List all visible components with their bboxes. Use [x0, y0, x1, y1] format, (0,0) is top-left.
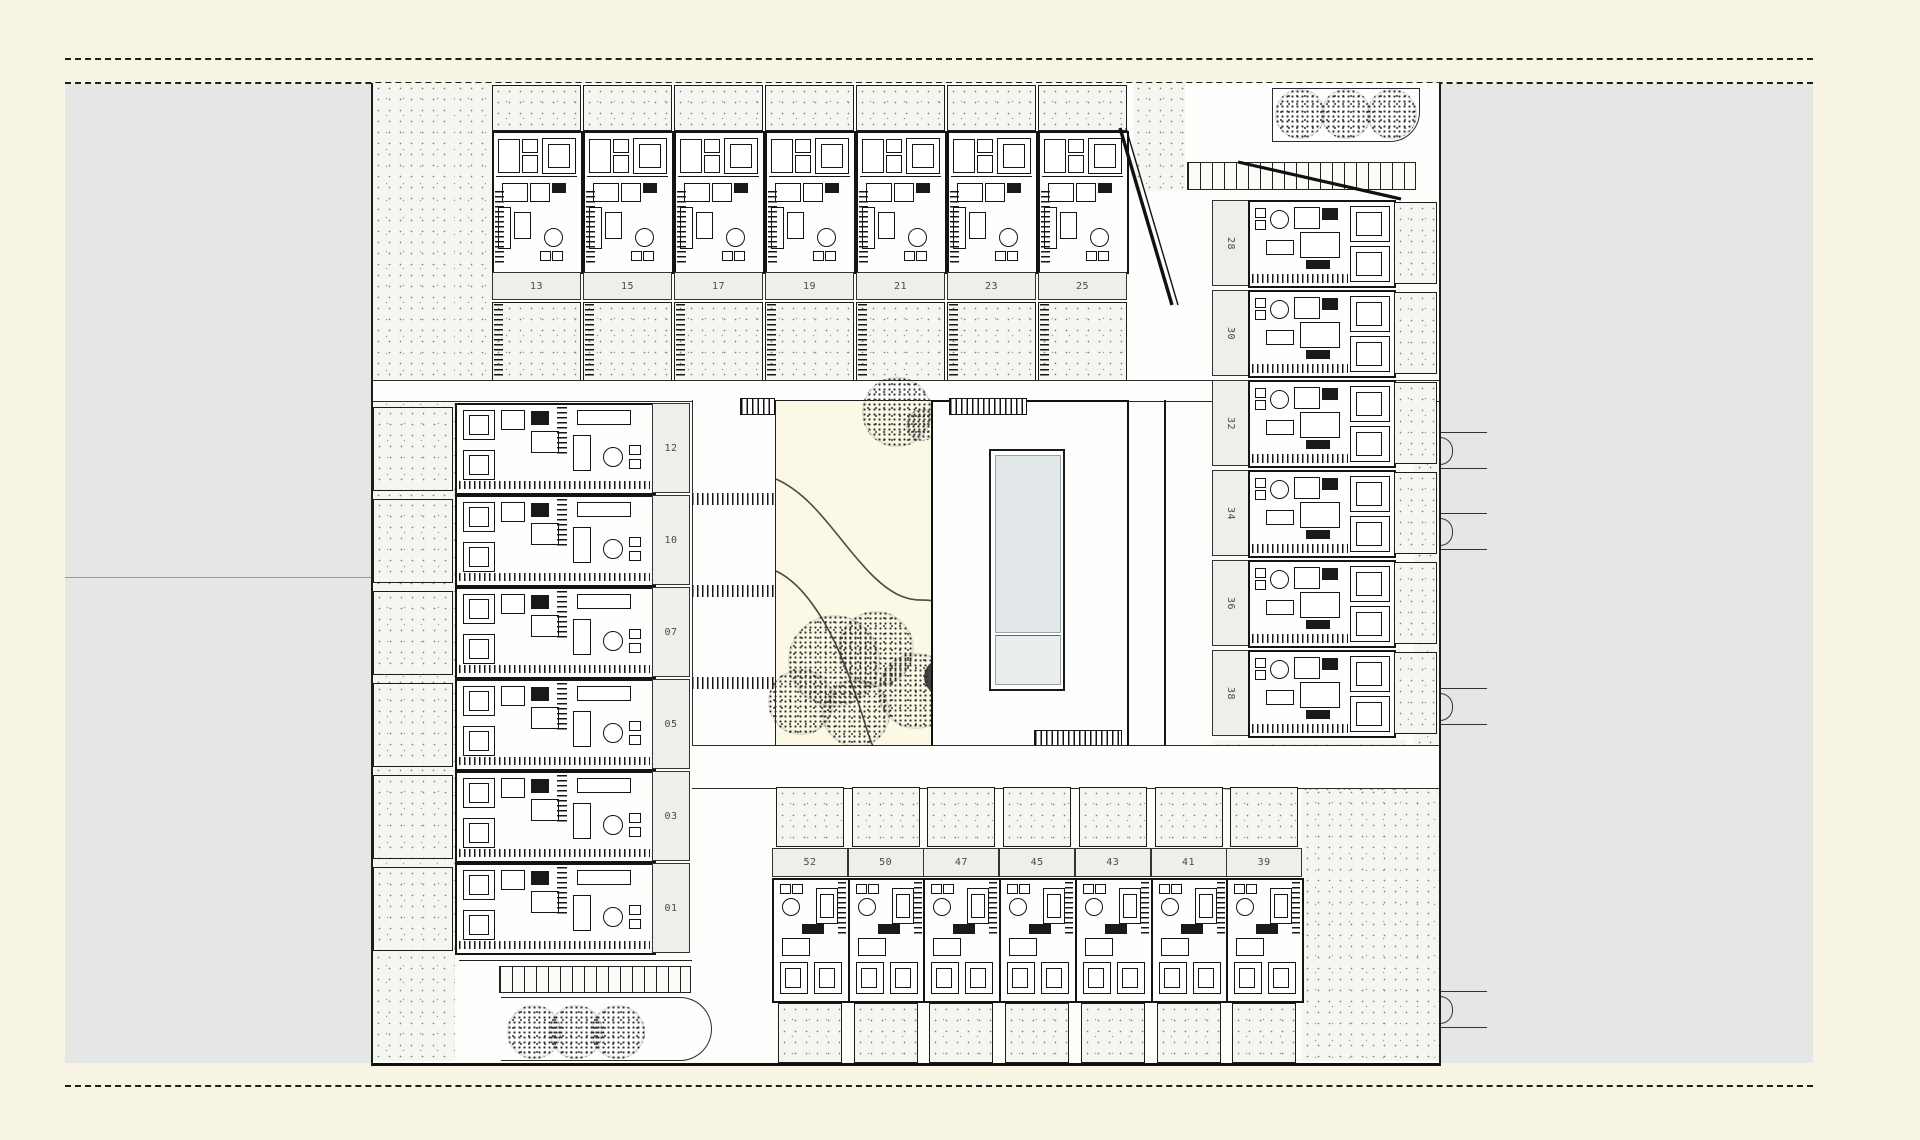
- walk-line: [1439, 991, 1487, 992]
- walk-line: [1439, 724, 1487, 725]
- walk-line: [1439, 688, 1487, 689]
- diagonal-walls: [373, 83, 1439, 1063]
- parcel-right: [1439, 84, 1813, 1063]
- walk-line: [1439, 432, 1487, 433]
- development-plan: 13: [371, 83, 1441, 1066]
- boundary-line-top-outer: [65, 58, 1813, 60]
- walk-line: [1439, 1027, 1487, 1028]
- walk-line: [1439, 549, 1487, 550]
- parcel-left-divider: [65, 577, 371, 578]
- boundary-line-bottom-outer: [65, 1085, 1813, 1087]
- walk-line: [1439, 468, 1487, 469]
- walk-line: [1439, 513, 1487, 514]
- parcel-left: [65, 84, 371, 1063]
- site-plan-sheet: 13: [0, 0, 1920, 1140]
